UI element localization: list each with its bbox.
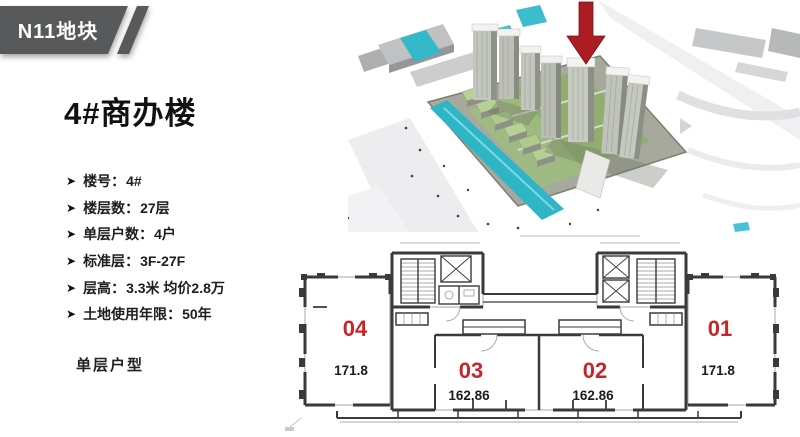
spec-value: 50年	[182, 304, 212, 324]
tower	[472, 24, 498, 100]
spec-value: 4户	[154, 224, 176, 244]
tower	[540, 56, 562, 138]
spec-label: 标准层	[83, 251, 125, 271]
spec-label: 楼号	[83, 171, 111, 191]
spec-value: 4#	[126, 173, 142, 189]
plan-annotation-mark	[285, 427, 294, 431]
unit-03-area: 162.86	[448, 388, 490, 403]
spec-item-land-tenure: ➤ 土地使用年限： 50年	[66, 301, 225, 328]
spec-colon: ：	[111, 171, 125, 191]
spec-colon: ：	[125, 251, 139, 271]
bullet-arrow-icon: ➤	[66, 282, 76, 294]
spec-item-units-per-floor: ➤ 单层户数： 4户	[66, 221, 225, 248]
core-rooms	[401, 256, 675, 304]
unit-04-number: 04	[343, 316, 368, 341]
bullet-arrow-icon: ➤	[66, 202, 76, 214]
unit-04-area: 171.8	[334, 363, 368, 378]
spec-list: ➤ 楼号： 4# ➤ 楼层数： 27层 ➤ 单层户数： 4户 ➤ 标准层： 3F…	[66, 168, 225, 328]
spec-item-building-no: ➤ 楼号： 4#	[66, 168, 225, 195]
spec-label: 单层户数	[83, 224, 139, 244]
bullet-arrow-icon: ➤	[66, 255, 76, 267]
spec-item-floors: ➤ 楼层数： 27层	[66, 195, 225, 222]
spec-colon: ：	[139, 224, 153, 244]
unit-01-area: 171.8	[701, 363, 735, 378]
unit-02-area: 162.86	[572, 388, 614, 403]
badge-label: N11地块	[18, 20, 99, 43]
spec-colon: ：	[167, 304, 181, 324]
roof-lines	[400, 236, 680, 243]
spec-label: 层高	[83, 278, 111, 298]
unit-02-number: 02	[583, 358, 607, 383]
floor-plan: 04 171.8 03 162.86 02 162.86 01 171.8	[283, 232, 795, 437]
unit-03-number: 03	[459, 358, 483, 383]
bullet-arrow-icon: ➤	[66, 308, 76, 320]
tower-highlighted	[567, 58, 595, 142]
tower	[520, 46, 541, 110]
bullet-arrow-icon: ➤	[66, 228, 76, 240]
bullet-arrow-icon: ➤	[66, 175, 76, 187]
spec-value: 3.3米 均价2.8万	[126, 278, 225, 298]
page-title: 4#商办楼	[64, 88, 196, 133]
spec-value: 27层	[140, 198, 170, 218]
spec-item-floor-height-price: ➤ 层高： 3.3米 均价2.8万	[66, 274, 225, 301]
site-aerial-render	[348, 0, 800, 232]
balcony-parapet	[337, 411, 741, 422]
spec-label: 楼层数	[83, 198, 125, 218]
spec-label: 土地使用年限	[83, 304, 167, 324]
spec-value: 3F-27F	[140, 253, 185, 269]
spec-colon: ：	[111, 278, 125, 298]
plot-badge: N11地块	[0, 4, 170, 60]
section-label-floor-layout: 单层户型	[76, 354, 144, 375]
unit-labels: 04 171.8 03 162.86 02 162.86 01 171.8	[334, 316, 735, 403]
spec-item-standard-floors: ➤ 标准层： 3F-27F	[66, 248, 225, 275]
leader-line	[290, 418, 301, 427]
bay-windows	[396, 313, 682, 334]
tower	[498, 29, 520, 99]
unit-01-number: 01	[708, 316, 732, 341]
spec-colon: ：	[125, 198, 139, 218]
